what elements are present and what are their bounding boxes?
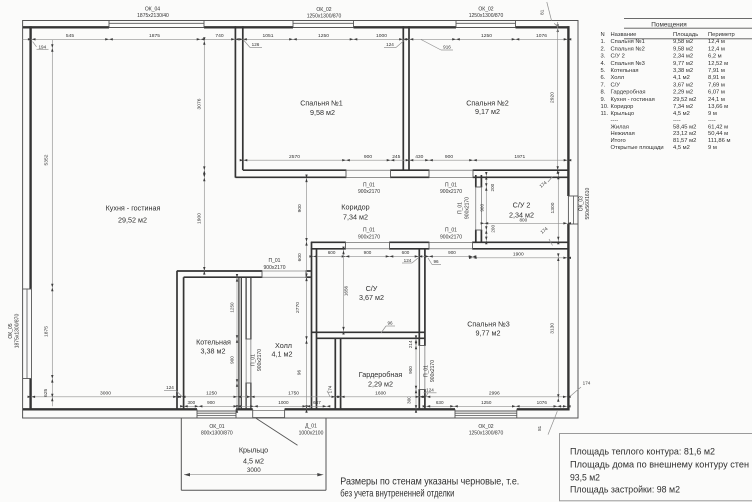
svg-text:без учета внутрененней отделки: без учета внутрененней отделки xyxy=(340,487,454,499)
svg-text:П_01: П_01 xyxy=(423,365,429,377)
svg-text:7,91 м: 7,91 м xyxy=(708,68,725,74)
svg-text:194: 194 xyxy=(38,44,46,49)
svg-text:Крыльцо: Крыльцо xyxy=(239,445,268,454)
svg-text:58,45 м2: 58,45 м2 xyxy=(673,124,696,130)
svg-text:8.: 8. xyxy=(601,90,606,96)
svg-text:Жилая: Жилая xyxy=(611,124,629,130)
svg-text:600: 600 xyxy=(297,253,303,261)
svg-text:Помещения: Помещения xyxy=(651,21,687,28)
svg-text:200: 200 xyxy=(491,225,496,233)
svg-text:900х2170: 900х2170 xyxy=(257,349,263,371)
svg-text:Спальня №2: Спальня №2 xyxy=(611,46,645,52)
svg-text:3.: 3. xyxy=(601,54,606,60)
svg-text:81,57 м2: 81,57 м2 xyxy=(673,138,696,144)
svg-text:Д_01: Д_01 xyxy=(305,424,317,430)
svg-text:Кухня - гостиная: Кухня - гостиная xyxy=(106,204,161,213)
svg-text:96: 96 xyxy=(297,370,302,376)
svg-text:1250х1300/870: 1250х1300/870 xyxy=(469,430,504,436)
svg-text:ОК_05: ОК_05 xyxy=(8,323,14,338)
svg-text:900: 900 xyxy=(448,250,456,255)
svg-text:ОК_02: ОК_02 xyxy=(316,7,331,13)
svg-text:9 м: 9 м xyxy=(708,111,717,117)
svg-text:126: 126 xyxy=(252,42,260,47)
svg-text:Площадь застройки: 98 м2: Площадь застройки: 98 м2 xyxy=(570,484,680,495)
svg-text:900х2170: 900х2170 xyxy=(264,265,286,271)
svg-text:3,38 м2: 3,38 м2 xyxy=(201,346,226,355)
svg-text:9 м: 9 м xyxy=(708,145,717,151)
svg-text:Периметр: Периметр xyxy=(708,32,735,38)
svg-text:1250: 1250 xyxy=(206,390,217,396)
svg-text:124: 124 xyxy=(426,387,434,392)
svg-text:900: 900 xyxy=(364,250,372,255)
svg-text:Площадь дома по внешнему конту: Площадь дома по внешнему контуру стен xyxy=(570,460,749,471)
svg-text:3000: 3000 xyxy=(100,390,111,396)
svg-text:Котельная: Котельная xyxy=(196,337,231,346)
svg-text:2.: 2. xyxy=(601,46,606,52)
svg-text:9,17 м2: 9,17 м2 xyxy=(475,107,500,116)
svg-text:24,1 м: 24,1 м xyxy=(708,97,725,103)
svg-text:174: 174 xyxy=(328,385,333,393)
svg-text:Размеры по стенам указаны черн: Размеры по стенам указаны черновые, т.е. xyxy=(340,477,519,488)
svg-text:174: 174 xyxy=(583,380,591,385)
svg-text:900: 900 xyxy=(408,366,413,374)
svg-text:1875: 1875 xyxy=(44,326,50,337)
svg-text:----: ---- xyxy=(673,118,681,124)
svg-text:1250: 1250 xyxy=(318,33,329,39)
svg-text:245: 245 xyxy=(392,154,400,160)
svg-text:13,66 м: 13,66 м xyxy=(708,104,728,110)
svg-text:2,29 м2: 2,29 м2 xyxy=(673,90,693,96)
svg-text:1250х1300/870: 1250х1300/870 xyxy=(469,13,504,19)
svg-text:Спальня №3: Спальня №3 xyxy=(467,319,510,328)
svg-text:Гардеробная: Гардеробная xyxy=(611,90,646,96)
svg-text:ОК_03: ОК_03 xyxy=(579,196,585,211)
svg-text:4,5 м2: 4,5 м2 xyxy=(243,456,264,465)
svg-text:Спальня №1: Спальня №1 xyxy=(300,99,343,108)
svg-text:1250: 1250 xyxy=(481,400,492,405)
svg-text:10.: 10. xyxy=(601,104,609,110)
svg-text:1875х2130/40: 1875х2130/40 xyxy=(137,13,169,19)
svg-text:900: 900 xyxy=(364,154,372,160)
svg-text:С/У: С/У xyxy=(611,82,621,88)
svg-text:900х2170: 900х2170 xyxy=(358,234,380,240)
svg-text:1000: 1000 xyxy=(278,400,289,405)
svg-text:900х2170: 900х2170 xyxy=(440,189,462,195)
svg-text:1000х2100: 1000х2100 xyxy=(299,431,324,437)
svg-text:96: 96 xyxy=(387,321,393,326)
svg-text:7,69 м: 7,69 м xyxy=(708,82,725,88)
svg-text:111,86 м: 111,86 м xyxy=(708,138,730,144)
svg-text:2,34 м2: 2,34 м2 xyxy=(509,210,534,219)
svg-text:29,52 м2: 29,52 м2 xyxy=(118,216,147,225)
svg-text:6.: 6. xyxy=(601,75,606,81)
svg-text:3130: 3130 xyxy=(549,323,555,334)
svg-text:Холл: Холл xyxy=(611,75,625,81)
svg-text:11.: 11. xyxy=(601,111,609,117)
svg-text:81: 81 xyxy=(540,9,545,15)
svg-text:900х2170: 900х2170 xyxy=(440,234,462,240)
svg-text:12,4 м: 12,4 м xyxy=(708,46,725,52)
svg-text:П_01: П_01 xyxy=(269,258,281,264)
svg-text:545: 545 xyxy=(66,33,74,39)
svg-text:8,91 м: 8,91 м xyxy=(708,75,725,81)
svg-text:9.: 9. xyxy=(601,97,606,103)
svg-text:2996: 2996 xyxy=(489,390,500,396)
svg-text:П_01: П_01 xyxy=(363,228,375,234)
svg-text:1900: 1900 xyxy=(513,252,524,258)
svg-text:3,67 м2: 3,67 м2 xyxy=(673,82,693,88)
svg-text:N: N xyxy=(601,32,605,38)
svg-text:12,52 м: 12,52 м xyxy=(708,61,728,67)
svg-text:900: 900 xyxy=(207,400,215,405)
svg-text:1076: 1076 xyxy=(536,33,547,39)
svg-text:1250: 1250 xyxy=(230,302,235,313)
svg-text:Название: Название xyxy=(611,32,637,38)
svg-text:----: ---- xyxy=(611,118,619,124)
svg-text:81: 81 xyxy=(537,425,542,431)
svg-text:1000: 1000 xyxy=(376,33,387,39)
svg-text:Гардеробная: Гардеробная xyxy=(359,370,403,379)
svg-text:Площадь: Площадь xyxy=(673,32,698,38)
svg-text:50,44 м: 50,44 м xyxy=(708,131,728,137)
svg-text:ОК_01: ОК_01 xyxy=(209,424,224,430)
svg-text:550х560/1610: 550х560/1610 xyxy=(585,188,591,220)
svg-text:Крыльцо: Крыльцо xyxy=(611,111,635,117)
svg-text:900: 900 xyxy=(297,204,303,212)
svg-text:1900: 1900 xyxy=(197,213,203,224)
svg-text:1.: 1. xyxy=(601,39,606,45)
svg-text:647: 647 xyxy=(313,400,321,405)
svg-text:2570: 2570 xyxy=(289,154,300,160)
svg-text:124: 124 xyxy=(166,385,174,390)
svg-text:3000: 3000 xyxy=(247,467,261,474)
svg-text:Кухня - гостиная: Кухня - гостиная xyxy=(611,97,655,103)
svg-text:1875: 1875 xyxy=(149,33,160,39)
svg-text:1076: 1076 xyxy=(537,400,548,405)
svg-text:3076: 3076 xyxy=(196,98,202,109)
svg-text:С/У 2: С/У 2 xyxy=(513,200,531,209)
svg-text:900х2170: 900х2170 xyxy=(430,360,436,382)
svg-text:Коридор: Коридор xyxy=(341,203,369,212)
svg-text:3,38 м2: 3,38 м2 xyxy=(673,68,693,74)
svg-text:600: 600 xyxy=(402,250,410,255)
svg-text:900х2170: 900х2170 xyxy=(358,189,380,195)
svg-text:430: 430 xyxy=(415,154,423,160)
svg-text:5.: 5. xyxy=(601,68,606,74)
svg-text:С/У: С/У xyxy=(366,284,378,293)
svg-text:4,1 м2: 4,1 м2 xyxy=(673,75,690,81)
svg-text:Спальня №1: Спальня №1 xyxy=(611,39,645,45)
svg-text:9,58 м2: 9,58 м2 xyxy=(673,39,693,45)
svg-text:П_01: П_01 xyxy=(458,202,464,214)
svg-text:Спальня №3: Спальня №3 xyxy=(611,61,645,67)
svg-text:Итого: Итого xyxy=(611,138,626,144)
svg-text:1051: 1051 xyxy=(263,33,274,39)
svg-text:3,67 м2: 3,67 м2 xyxy=(359,293,384,302)
svg-text:Площадь теплого контура: 81,6: Площадь теплого контура: 81,6 м2 xyxy=(570,446,715,457)
svg-text:9,77 м2: 9,77 м2 xyxy=(673,61,693,67)
svg-text:1250: 1250 xyxy=(481,33,492,39)
svg-text:740: 740 xyxy=(215,33,223,39)
svg-text:2,34 м2: 2,34 м2 xyxy=(673,54,693,60)
svg-text:2,29 м2: 2,29 м2 xyxy=(368,379,393,388)
svg-text:29,52 м2: 29,52 м2 xyxy=(673,97,696,103)
svg-text:ОК_02: ОК_02 xyxy=(478,424,493,430)
svg-text:С/У 2: С/У 2 xyxy=(611,54,625,60)
svg-text:4,5 м2: 4,5 м2 xyxy=(673,111,690,117)
svg-text:214: 214 xyxy=(408,340,413,348)
svg-text:5352: 5352 xyxy=(44,154,50,165)
svg-text:23,12 м2: 23,12 м2 xyxy=(673,131,696,137)
svg-text:Котельная: Котельная xyxy=(611,68,639,74)
svg-text:2920: 2920 xyxy=(549,92,555,103)
svg-text:Нежилая: Нежилая xyxy=(611,131,635,137)
svg-text:ОК_04: ОК_04 xyxy=(145,7,160,13)
svg-text:----: ---- xyxy=(708,118,716,124)
svg-text:6,07 м: 6,07 м xyxy=(708,90,725,96)
svg-text:ОК_02: ОК_02 xyxy=(478,7,493,13)
svg-text:2770: 2770 xyxy=(295,302,301,313)
svg-text:61,42 м: 61,42 м xyxy=(708,124,728,130)
svg-text:П_01: П_01 xyxy=(445,228,457,234)
svg-text:124: 124 xyxy=(404,258,412,263)
svg-text:4,1 м2: 4,1 м2 xyxy=(272,349,293,358)
svg-text:7,34 м2: 7,34 м2 xyxy=(343,213,368,222)
svg-text:4,5 м2: 4,5 м2 xyxy=(673,145,690,151)
svg-text:1250х1300/870: 1250х1300/870 xyxy=(307,13,342,19)
svg-text:1656: 1656 xyxy=(344,285,349,296)
svg-text:900: 900 xyxy=(480,204,485,212)
svg-text:1875х1300/870: 1875х1300/870 xyxy=(15,314,21,349)
svg-text:96: 96 xyxy=(433,259,439,264)
svg-text:12,4 м: 12,4 м xyxy=(708,39,725,45)
svg-text:9,77 м2: 9,77 м2 xyxy=(476,328,501,337)
svg-text:6,2 м: 6,2 м xyxy=(708,54,722,60)
svg-text:900х2170: 900х2170 xyxy=(465,197,471,219)
svg-text:900: 900 xyxy=(445,154,453,160)
svg-text:300: 300 xyxy=(187,400,195,405)
svg-text:916: 916 xyxy=(443,45,451,50)
svg-text:Открытые площади: Открытые площади xyxy=(611,145,664,151)
svg-text:1300: 1300 xyxy=(550,202,556,213)
svg-text:7.: 7. xyxy=(601,82,606,88)
svg-text:800х1300/870: 800х1300/870 xyxy=(201,430,233,436)
svg-text:П_01: П_01 xyxy=(363,182,375,188)
svg-text:630: 630 xyxy=(436,400,444,405)
svg-text:9,58 м2: 9,58 м2 xyxy=(673,46,693,52)
svg-text:93,5 м2: 93,5 м2 xyxy=(570,473,600,484)
svg-text:П_01: П_01 xyxy=(445,182,457,188)
svg-text:1750: 1750 xyxy=(288,390,299,396)
svg-text:Коридор: Коридор xyxy=(611,104,634,110)
svg-text:124: 124 xyxy=(386,42,394,47)
svg-text:200: 200 xyxy=(490,183,495,191)
svg-text:1600: 1600 xyxy=(375,390,386,396)
svg-text:1971: 1971 xyxy=(514,154,525,160)
svg-text:П_01: П_01 xyxy=(250,354,256,366)
svg-text:625: 625 xyxy=(43,388,49,396)
svg-text:4.: 4. xyxy=(601,61,606,67)
svg-text:7,34 м2: 7,34 м2 xyxy=(673,104,693,110)
svg-text:900: 900 xyxy=(230,356,235,364)
svg-text:9,58 м2: 9,58 м2 xyxy=(310,108,335,117)
svg-text:600: 600 xyxy=(328,250,336,255)
